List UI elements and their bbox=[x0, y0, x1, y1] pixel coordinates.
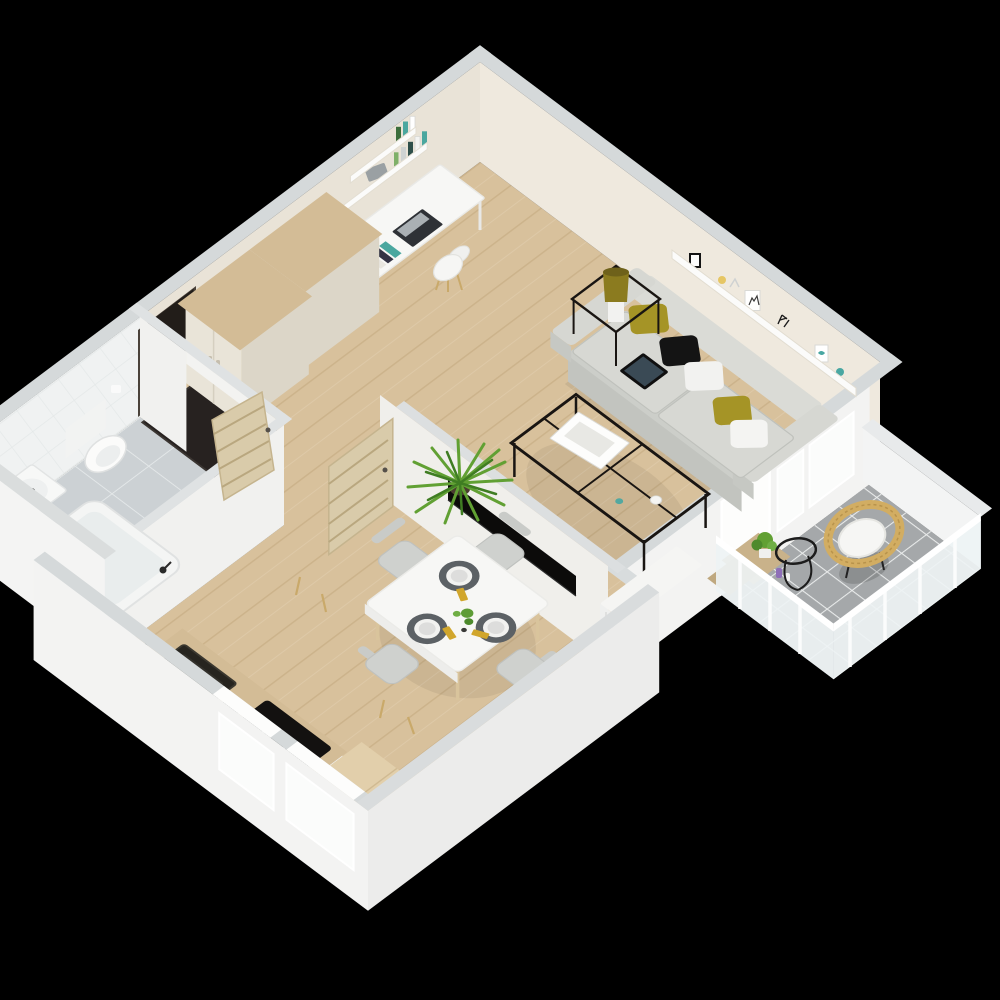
throw-pillow-white bbox=[684, 361, 724, 391]
gold-decor bbox=[718, 276, 726, 284]
plant-pot bbox=[759, 549, 771, 558]
candle-purple bbox=[776, 568, 782, 578]
door-handle bbox=[266, 428, 271, 433]
throw-pillow-white bbox=[730, 420, 768, 448]
floor-plan-render bbox=[0, 0, 1000, 1000]
lamp-shade-top bbox=[603, 268, 629, 277]
door-handle bbox=[383, 468, 388, 473]
apartment-isometric-svg bbox=[0, 0, 1000, 1000]
toilet-paper-holder bbox=[111, 385, 121, 393]
